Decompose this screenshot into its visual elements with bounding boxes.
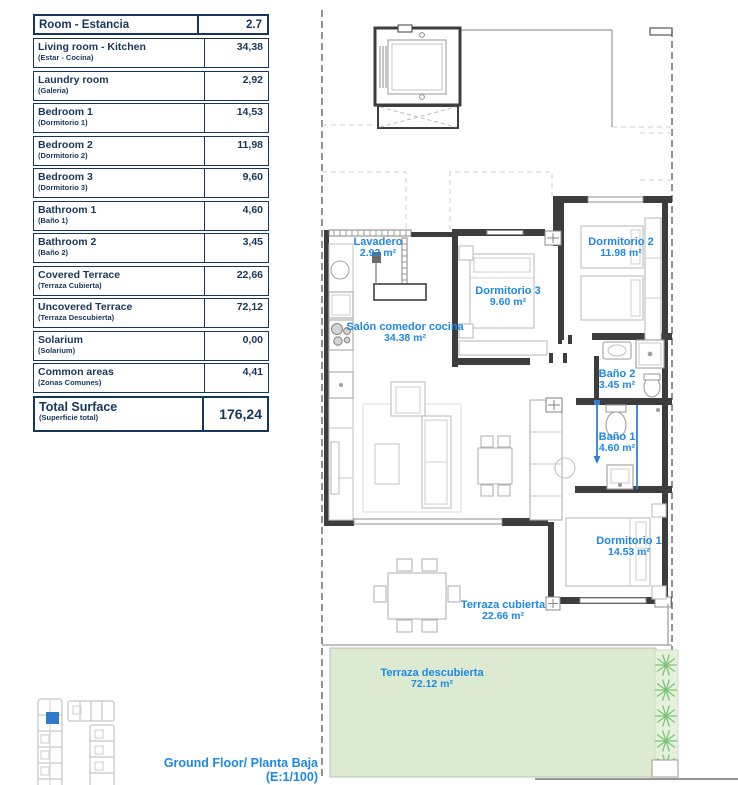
row-subname: (Dormitorio 2) [38,151,200,160]
table-row: Uncovered Terrace (Terraza Descubierta) … [33,298,269,328]
room-label-lavadero: Lavadero 2.92 m² [354,237,403,258]
row-name: Bathroom 2 [38,236,200,248]
table-row: Covered Terrace (Terraza Cubierta) 22,66 [33,266,269,296]
hallway-closets [530,398,575,520]
corridor-lines [460,30,612,127]
row-subname: (Zonas Comunes) [38,378,200,387]
row-value: 9,60 [205,169,268,197]
row-subname: (Dormitorio 1) [38,118,200,127]
uncovered-terrace-area [330,648,656,777]
row-name: Bedroom 2 [38,139,200,151]
elevator [375,25,460,128]
key-plan-highlighted-unit [46,712,59,724]
row-name: Laundry room [38,74,200,86]
room-label-bano-2: Baño 2 3.45 m² [599,369,636,390]
plan-caption: Ground Floor/ Planta Baja (E:1/100) [148,756,318,784]
row-subname: (Baño 1) [38,216,200,225]
row-value: 11,98 [205,137,268,165]
row-subname: (Terraza Descubierta) [38,313,200,322]
overhang-dashed-lines [322,125,672,230]
table-row: Living room - Kitchen (Estar - Cocina) 3… [33,38,269,68]
row-name: Living room - Kitchen [38,41,200,53]
table-row: Common areas (Zonas Comunes) 4,41 [33,363,269,393]
row-subname: (Dormitorio 3) [38,183,200,192]
table-row: Bedroom 2 (Dormitorio 2) 11,98 [33,136,269,166]
row-value: 72,12 [205,299,268,327]
area-table-header: Room - Estancia 2.7 [33,14,269,35]
row-name: Bedroom 3 [38,171,200,183]
row-subname: (Baño 2) [38,248,200,257]
area-table-rows: Living room - Kitchen (Estar - Cocina) 3… [33,38,269,393]
row-value: 4,60 [205,202,268,230]
table-row: Bedroom 1 (Dormitorio 1) 14,53 [33,103,269,133]
table-row: Laundry room (Galeria) 2,92 [33,71,269,101]
key-plan-thumbnail [25,685,140,785]
row-subname: (Galeria) [38,86,200,95]
row-subname: (Solarium) [38,346,200,355]
row-value: 2,92 [205,72,268,100]
table-row: Bathroom 1 (Baño 1) 4,60 [33,201,269,231]
living-room-furniture [331,382,512,512]
closet-plus-marker-top [545,231,561,245]
planting-strip [652,650,678,777]
table-total-row: Total Surface (Superficie total) 176,24 [33,396,269,432]
caption-floor-name: Ground Floor/ Planta Baja [148,756,318,770]
table-row: Bathroom 2 (Baño 2) 3,45 [33,233,269,263]
table-row: Bedroom 3 (Dormitorio 3) 9,60 [33,168,269,198]
room-label-terraza-cubierta: Terraza cubierta 22.66 m² [461,600,545,621]
room-label-dormitorio-2: Dormitorio 2 11.98 m² [588,237,653,258]
room-label-dormitorio-1: Dormitorio 1 14.53 m² [596,536,661,557]
unit-number: 2.7 [197,16,267,33]
terrace-dining-table [374,559,460,632]
top-right-wall-stub [650,28,672,35]
closet-plus-marker-terrace [546,597,560,610]
row-value: 0,00 [205,332,268,360]
row-value: 14,53 [205,104,268,132]
row-value: 3,45 [205,234,268,262]
row-name: Common areas [38,366,200,378]
row-subname: (Terraza Cubierta) [38,281,200,290]
room-label-salon-comedor-cocina: Salón comedor cocina 34.38 m² [346,322,463,343]
row-value: 22,66 [205,267,268,295]
table-row: Solarium (Solarium) 0,00 [33,331,269,361]
row-name: Solarium [38,334,200,346]
total-sublabel: (Superficie total) [39,413,198,422]
row-name: Bedroom 1 [38,106,200,118]
area-table: Room - Estancia 2.7 Living room - Kitche… [33,14,269,434]
row-value: 34,38 [205,39,268,67]
total-value: 176,24 [204,398,267,430]
laundry-fixtures [372,252,426,300]
floorplan-page: Room - Estancia 2.7 Living room - Kitche… [0,0,738,785]
room-label-bano-1: Baño 1 4.60 m² [599,432,636,453]
room-label-terraza-descubierta: Terraza descubierta 72.12 m² [380,668,483,689]
row-subname: (Estar - Cocina) [38,53,200,62]
row-name: Uncovered Terrace [38,301,200,313]
row-name: Bathroom 1 [38,204,200,216]
room-label-dormitorio-3: Dormitorio 3 9.60 m² [475,286,540,307]
table-header-label: Room - Estancia [35,18,197,32]
total-label: Total Surface [39,401,198,413]
caption-scale: (E:1/100) [148,770,318,784]
row-value: 4,41 [205,364,268,392]
row-name: Covered Terrace [38,269,200,281]
